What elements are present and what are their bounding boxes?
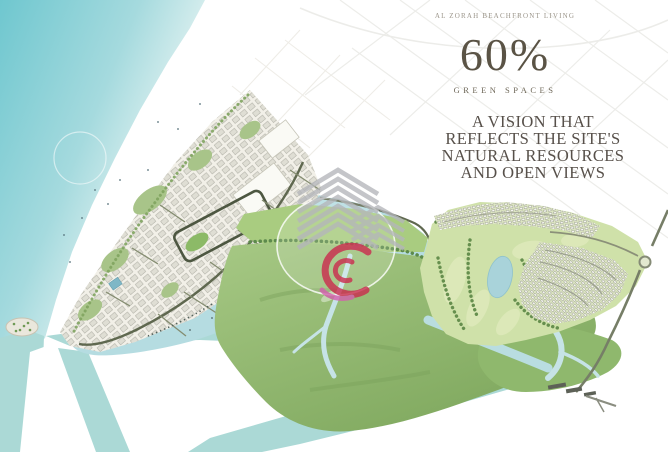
round-island-park	[6, 318, 38, 336]
masterplan-listing-image: AL ZORAH BEACHFRONT LIVING 60% GREEN SPA…	[0, 0, 668, 452]
roundabout	[640, 257, 651, 268]
masterplan-map	[0, 0, 668, 452]
channel-diagonal	[58, 348, 130, 452]
